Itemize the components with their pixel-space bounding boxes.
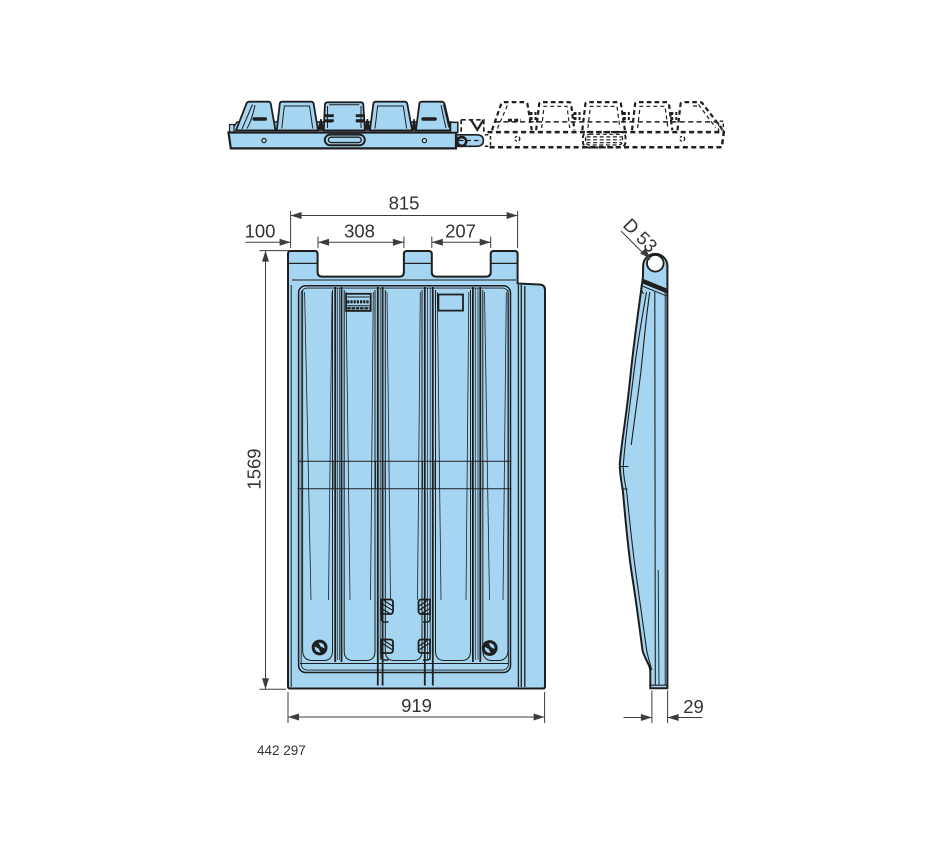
svg-text:1569: 1569 — [244, 448, 265, 489]
svg-text:815: 815 — [389, 193, 420, 214]
svg-text:442 297: 442 297 — [257, 743, 306, 758]
svg-text:100: 100 — [245, 221, 276, 242]
svg-text:919: 919 — [401, 695, 432, 716]
svg-text:29: 29 — [683, 696, 704, 717]
svg-text:308: 308 — [344, 221, 375, 242]
svg-text:207: 207 — [445, 221, 476, 242]
